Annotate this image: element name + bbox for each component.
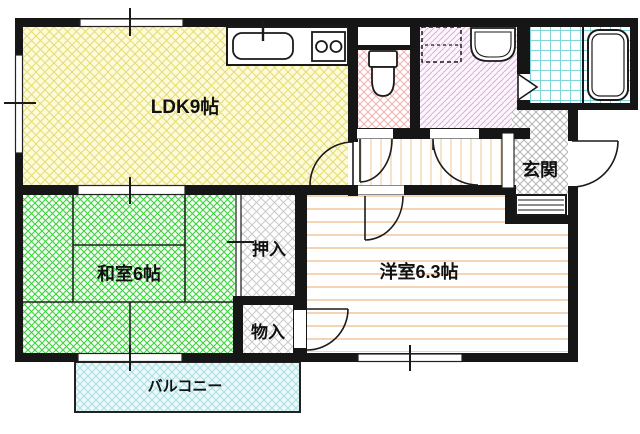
wall-right-mid-a [568, 110, 578, 141]
stove-burner-left-icon [316, 41, 327, 52]
opening-monoire-door [294, 310, 306, 348]
wall-step-bottom [505, 215, 578, 224]
wash-basin-icon [471, 28, 515, 61]
label-ldk: LDK9帖 [151, 95, 220, 118]
wall-oshiire-monoire [233, 296, 307, 305]
sliding-door-ldk-washitsu [78, 186, 185, 195]
label-monoire: 物入 [251, 322, 285, 342]
opening-toilet-door [357, 129, 393, 139]
label-genkan: 玄関 [522, 159, 558, 180]
room-hallway [356, 136, 504, 188]
room-genkan [512, 108, 570, 197]
wall-washroom-bath-b [517, 100, 530, 105]
label-balcony: バルコニー [148, 378, 223, 395]
wall-toilet-washroom [410, 18, 420, 138]
floor-plan: LDK9帖 和室6帖 洋室6.3帖 押入 物入 玄関 バルコニー [0, 0, 640, 434]
wall-oshiire-right [295, 193, 307, 300]
wall-washroom-bath-a [517, 18, 530, 74]
wall-under-bath [517, 103, 638, 110]
toilet-tank-icon [369, 51, 397, 67]
wall-monoire-left [233, 305, 243, 355]
wall-right-upper [630, 18, 638, 110]
toilet-niche [358, 27, 410, 46]
label-yoshitsu: 洋室6.3帖 [379, 261, 458, 282]
stove-burner-right-icon [331, 41, 342, 52]
wall-spine-upper [348, 18, 358, 142]
fusuma-oshiire [236, 195, 241, 296]
opening-washroom-door [430, 129, 479, 139]
toilet-bowl-icon [372, 67, 394, 96]
wall-niche-bottom [356, 45, 412, 50]
label-washitsu: 和室6帖 [97, 263, 161, 284]
genkan-step-edge [502, 133, 514, 188]
bathtub-icon [588, 30, 628, 100]
wall-right-mid-b [568, 186, 578, 362]
window-top-ldk [80, 19, 183, 27]
floor-plan-drawing: LDK9帖 和室6帖 洋室6.3帖 押入 物入 玄関 バルコニー [0, 0, 640, 434]
opening-entrance-door [568, 141, 578, 186]
label-oshiire: 押入 [252, 239, 286, 259]
door-arc-entrance [572, 141, 618, 187]
opening-yoshitsu-door [358, 186, 404, 195]
